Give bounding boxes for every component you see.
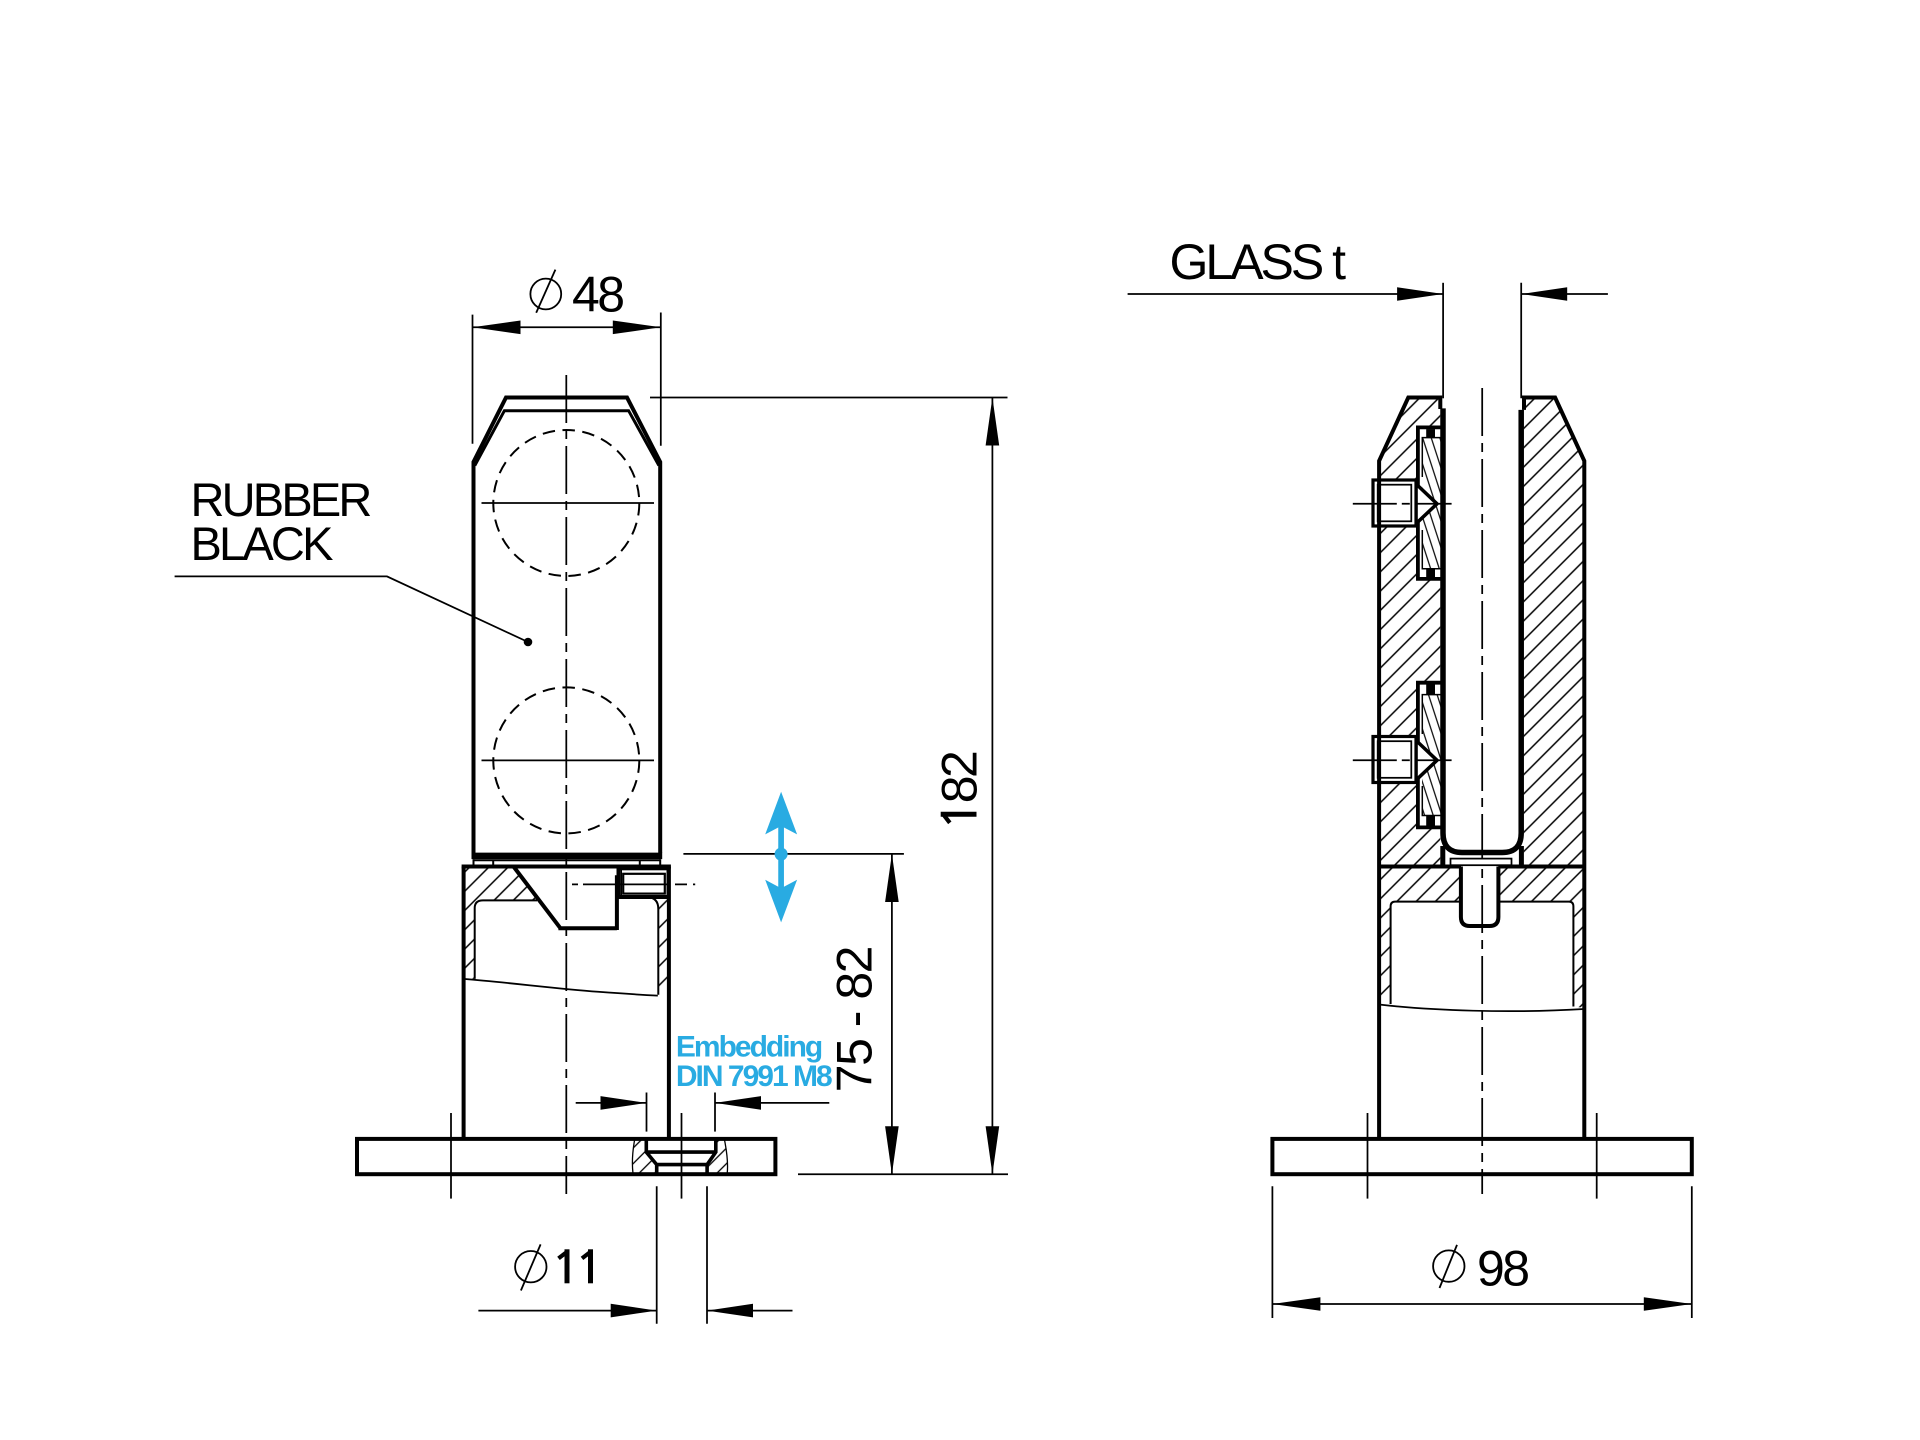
svg-text:GLASS t: GLASS t [1170, 234, 1347, 290]
svg-text:DIN 7991 M8: DIN 7991 M8 [676, 1060, 832, 1093]
svg-text:98: 98 [1477, 1240, 1528, 1296]
svg-text:Embedding: Embedding [676, 1030, 822, 1063]
svg-text:75 - 82: 75 - 82 [827, 947, 883, 1092]
svg-text:82: 82 [932, 752, 988, 803]
svg-text:48: 48 [572, 267, 623, 323]
svg-text:BLACK: BLACK [191, 517, 334, 570]
